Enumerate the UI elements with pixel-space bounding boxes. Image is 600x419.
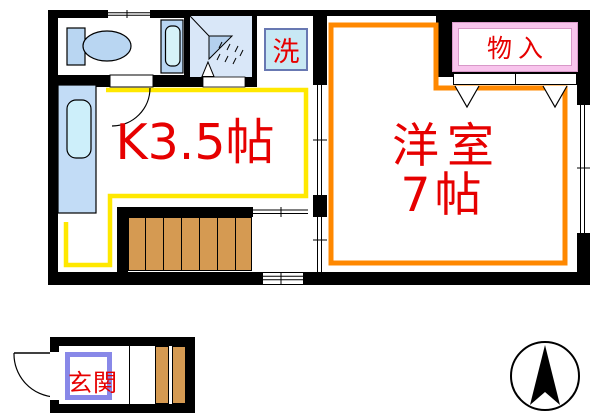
entrance-step: [172, 346, 186, 404]
entrance-step: [155, 346, 169, 404]
laundry-box: 洗: [264, 28, 308, 71]
stair-tread-line: [235, 218, 236, 270]
stairs-top-wall: [117, 207, 253, 217]
closet-door-strip: [453, 73, 577, 85]
entrance-label: 玄関: [62, 366, 124, 394]
stair-tread-line: [217, 218, 218, 270]
stairs-side-wall: [117, 207, 128, 272]
stair-tread-line: [163, 218, 164, 270]
stair-tread-line: [199, 218, 200, 270]
entrance-divider-line: [129, 346, 130, 404]
western-room-label: 洋室 7帖: [330, 122, 556, 220]
western-room-label-line1: 洋室: [338, 122, 556, 171]
kitchen-label: K3.5帖: [100, 117, 290, 169]
stairs: [128, 217, 252, 271]
entrance-label-text: 玄関: [68, 363, 118, 398]
laundry-label: 洗: [273, 30, 300, 69]
toilet-room: [58, 18, 184, 75]
north-arrow-icon: [511, 342, 579, 410]
stair-tread-line: [181, 218, 182, 270]
entrance-door-opening: [50, 352, 59, 400]
floorplan-canvas: 洗 物入 K3.5帖 洋室 7帖 玄関: [0, 0, 600, 419]
closet-door-divider: [515, 74, 516, 84]
closet-box: 物入: [453, 23, 577, 71]
stair-tread-line: [145, 218, 146, 270]
shower-room: [190, 16, 252, 77]
closet-label: 物入: [487, 29, 549, 65]
western-room-label-line2: 7帖: [330, 171, 556, 220]
